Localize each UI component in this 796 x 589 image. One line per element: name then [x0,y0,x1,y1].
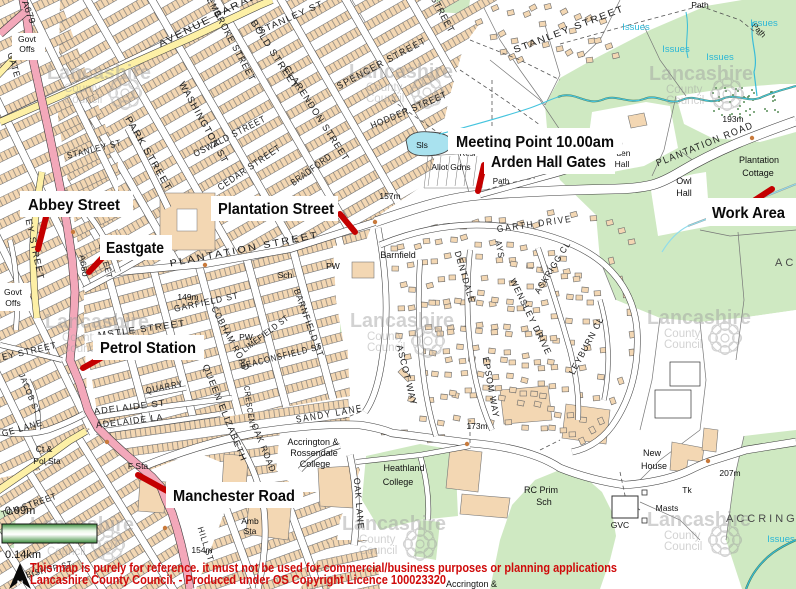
svg-text:Eastgate: Eastgate [106,240,164,257]
svg-text:Manchester Road: Manchester Road [173,488,295,505]
svg-text:Issues: Issues [706,52,734,63]
svg-text:Sls: Sls [416,140,428,150]
svg-text:Pol Sta: Pol Sta [33,456,61,466]
svg-text:GVC: GVC [611,520,629,530]
svg-text:Council: Council [359,545,397,557]
svg-text:Council: Council [664,541,702,553]
svg-text:Heathland: Heathland [383,463,424,473]
svg-text:Council: Council [366,93,404,105]
svg-text:Tk: Tk [682,485,692,495]
svg-text:F Sta: F Sta [128,461,149,471]
svg-text:New: New [643,448,662,458]
svg-text:House: House [641,461,667,471]
svg-text:Hall: Hall [615,159,630,169]
svg-text:RC Prim: RC Prim [524,485,558,495]
svg-text:College: College [383,477,414,487]
svg-text:Council: Council [664,339,702,351]
svg-text:ACCRINGTON: ACCRINGTON [726,513,796,525]
svg-text:College: College [300,459,331,469]
svg-text:Amb: Amb [241,516,259,526]
svg-text:Sta: Sta [244,526,257,536]
svg-text:Petrol Station: Petrol Station [100,340,196,357]
svg-text:Ct &: Ct & [36,444,53,454]
svg-text:Govt: Govt [18,34,37,44]
svg-text:Work Area: Work Area [712,205,785,222]
svg-text:Offs: Offs [5,298,20,308]
svg-text:Path: Path [493,177,509,186]
svg-text:Sch: Sch [278,270,293,280]
svg-text:Barnfield: Barnfield [380,250,416,260]
svg-text:0.14km: 0.14km [5,549,41,561]
svg-text:Plantation Street: Plantation Street [218,201,335,218]
svg-text:Offs: Offs [19,44,34,54]
svg-text:154m: 154m [191,545,212,555]
svg-text:0.09m: 0.09m [5,505,36,517]
svg-text:Council: Council [64,94,102,106]
svg-text:Owl: Owl [676,176,692,186]
svg-text:PW: PW [239,332,253,342]
svg-text:N: N [17,579,24,589]
svg-text:Sch: Sch [536,497,552,507]
svg-text:PW: PW [326,261,340,271]
svg-text:149m: 149m [177,292,198,302]
svg-text:Accrington &: Accrington & [287,437,338,447]
svg-text:Allot Gdns: Allot Gdns [431,162,470,172]
svg-text:Cottage: Cottage [742,168,774,178]
svg-text:Rossendale: Rossendale [290,448,338,458]
svg-text:Path: Path [691,0,709,10]
svg-text:Council: Council [666,95,704,107]
svg-text:Issues: Issues [622,22,650,33]
svg-text:173m: 173m [466,421,487,431]
svg-text:Lancashire County Council. - P: Lancashire County Council. - Produced un… [30,573,446,587]
svg-text:Plantation: Plantation [739,155,779,165]
svg-text:ACCRIN: ACCRIN [775,257,796,269]
svg-text:Govt: Govt [4,287,23,297]
svg-text:157m: 157m [379,191,400,201]
svg-text:Issues: Issues [750,18,778,29]
svg-text:Masts: Masts [656,503,679,513]
svg-text:193m: 193m [722,114,743,124]
svg-text:207m: 207m [719,468,740,478]
svg-text:Council: Council [47,546,85,558]
svg-text:Abbey Street: Abbey Street [28,197,121,214]
svg-text:Accrington &: Accrington & [446,579,497,589]
svg-text:Issues: Issues [767,534,795,545]
svg-text:Hall: Hall [676,188,692,198]
svg-text:Issues: Issues [662,44,690,55]
svg-text:Arden Hall Gates: Arden Hall Gates [491,154,606,171]
